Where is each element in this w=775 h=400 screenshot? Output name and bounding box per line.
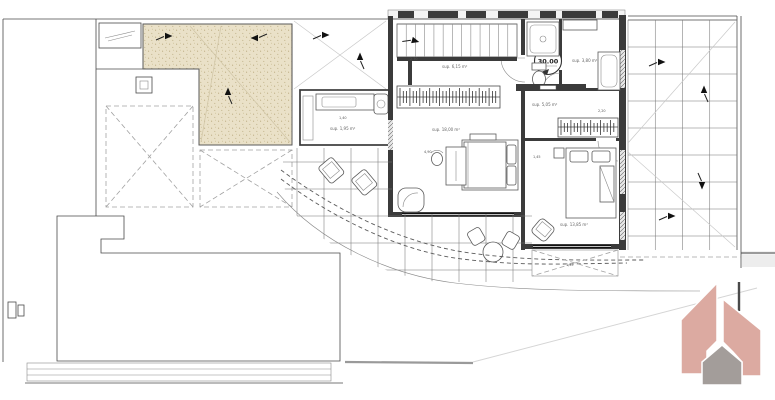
garage-vent-symbol xyxy=(99,23,141,48)
pillow xyxy=(507,145,516,164)
dimension-label: 2,20 xyxy=(598,109,606,113)
rooflight-symbol xyxy=(136,77,152,93)
slope-arrow-icon xyxy=(402,35,420,46)
pergola-terrace xyxy=(620,16,741,257)
floor-plan-canvas: 1,40 sup. 1,95 m² xyxy=(0,0,775,400)
wardrobe-dressing: sup. 6,15 m² xyxy=(397,64,500,108)
bedside-table xyxy=(554,148,564,158)
hall-basin xyxy=(540,86,556,90)
master-bedroom: sup. 18,00 m² 4,90 xyxy=(398,127,518,212)
room-area-label: sup. 3,80 m² xyxy=(572,58,598,63)
floor-plan-page: 1,40 sup. 1,95 m² xyxy=(0,0,775,400)
bed-bench xyxy=(470,134,496,140)
gravel-roof-terrace xyxy=(143,24,292,145)
room-area-label: sup. 1,95 m² xyxy=(330,126,356,131)
wardrobe-bedroom2 xyxy=(558,118,618,137)
slope-arrow-icon xyxy=(357,53,364,70)
slope-arrow-icon xyxy=(649,59,666,66)
hanger-ticks xyxy=(561,120,614,135)
master-desk xyxy=(431,147,466,185)
bedroom2: 1,45 sup. 13,85 m² xyxy=(530,148,616,243)
patio-table xyxy=(483,242,503,262)
room-area-label: sup. 5,05 m² xyxy=(532,102,558,107)
laundry-room: 1,40 sup. 1,95 m² xyxy=(300,90,390,145)
gate-symbol xyxy=(8,302,24,318)
laundry-door xyxy=(303,96,313,140)
patio-chair-1 xyxy=(466,226,486,246)
master-bed xyxy=(462,134,518,190)
slope-arrow-icon xyxy=(659,213,676,220)
pergola-grid xyxy=(628,20,737,250)
lounge-chair-1 xyxy=(318,157,345,185)
dimension-label: 1,45 xyxy=(533,155,541,159)
lower-terrace xyxy=(8,216,473,383)
entrance-steps xyxy=(25,363,343,383)
lounge-chair-2 xyxy=(351,169,378,197)
slope-arrow-icon xyxy=(701,86,708,103)
dimension-label: 1,40 xyxy=(339,116,347,120)
room-area-label: sup. 13,85 m² xyxy=(560,222,588,227)
room-area-label: sup. 6,15 m² xyxy=(442,64,468,69)
patio-chair-2 xyxy=(501,230,521,250)
bedroom2-bed xyxy=(554,148,616,218)
dimension-label: 4,90 xyxy=(424,150,432,154)
pillow xyxy=(507,166,516,185)
bathroom: sup. 3,80 m² 2,20 xyxy=(527,20,620,113)
slope-arrow-icon xyxy=(698,173,705,190)
laundry-counter xyxy=(316,94,374,110)
dimension-label: 1,35 xyxy=(566,263,574,267)
desk-chair xyxy=(432,153,443,166)
shower xyxy=(527,22,559,56)
room-area-label: sup. 18,00 m² xyxy=(432,127,460,132)
north-facade-windows xyxy=(398,11,618,18)
roof-slope-panel xyxy=(292,21,386,90)
pillow xyxy=(570,151,588,162)
corner-armchair xyxy=(398,188,424,212)
hall: sup. 5,05 m² xyxy=(516,84,586,107)
skylight-opening-2 xyxy=(200,150,292,207)
slope-arrow-icon xyxy=(313,32,330,39)
toilet-tank xyxy=(532,63,546,70)
company-logo xyxy=(681,283,761,385)
dimension-label: 2,70 xyxy=(410,57,418,61)
vanity-counter xyxy=(563,20,597,30)
water-heater xyxy=(374,94,388,114)
flat-roof-left xyxy=(136,77,152,93)
bedroom2-armchair xyxy=(530,217,555,242)
pillow xyxy=(592,151,610,162)
skylight-opening-1 xyxy=(106,106,193,207)
